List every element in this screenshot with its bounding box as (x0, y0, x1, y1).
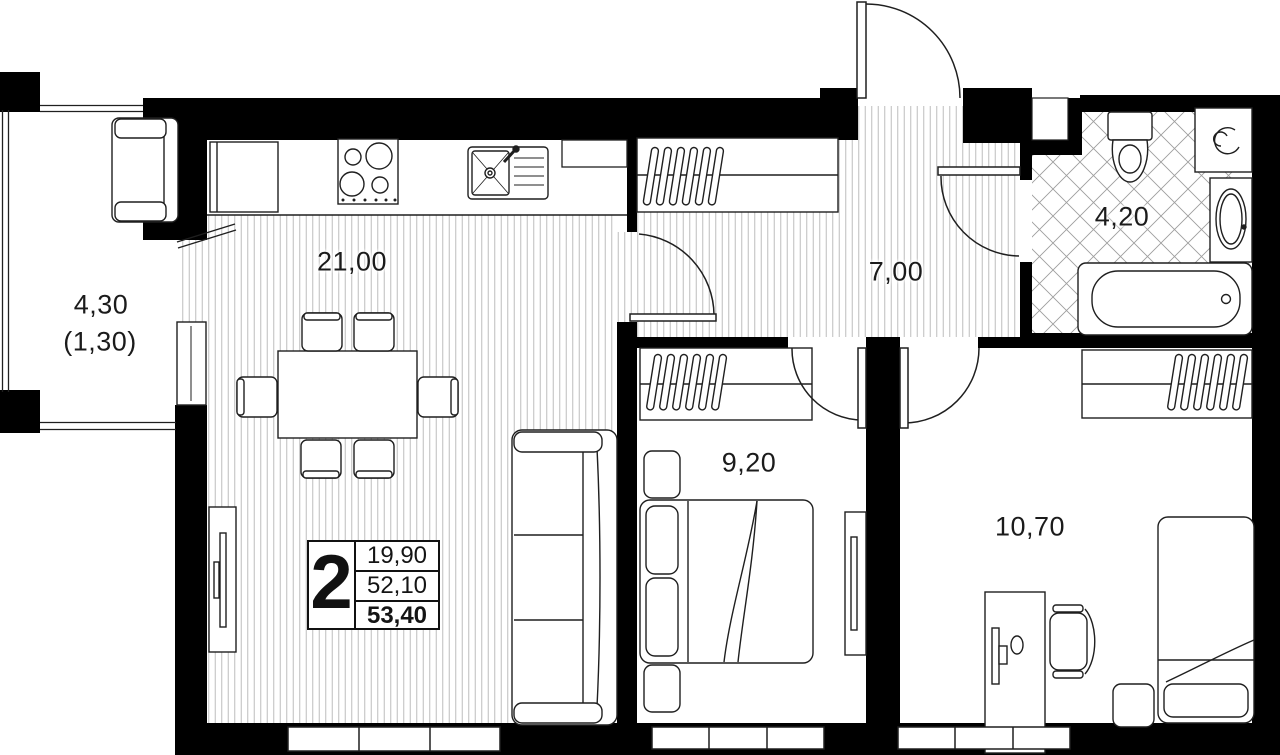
wall-top (143, 98, 858, 140)
floor-plan: 4,30 (1,30) 21,00 7,00 4,20 9,20 10,70 2… (0, 0, 1280, 755)
room-label-balcony: 4,30 (74, 290, 129, 321)
bathtub (1078, 263, 1252, 335)
vent-niche (562, 140, 627, 167)
floor-plan-drawing (0, 0, 1280, 755)
windows (288, 727, 1070, 751)
room-label-bathroom: 4,20 (1095, 202, 1150, 233)
stat-room-count: 2 (309, 542, 356, 628)
hallway-wardrobe (637, 138, 838, 212)
apartment-stats-table: 2 19,90 52,10 53,40 (307, 540, 440, 630)
floor-balcony-doorway (178, 240, 207, 322)
washing-machine (1195, 108, 1252, 172)
mouse (1011, 636, 1023, 654)
room-label-balcony-reduced: (1,30) (63, 327, 137, 358)
door-leaf (857, 2, 866, 98)
floor-entrance-threshold (858, 106, 963, 140)
bedroom2-wardrobe (1082, 350, 1252, 418)
room-label-hallway: 7,00 (869, 257, 924, 288)
bedroom1-wardrobe (640, 348, 812, 420)
tv-screen (220, 533, 226, 627)
wall-right (1252, 95, 1280, 755)
bedroom2-window (898, 727, 1070, 749)
dining-table (278, 351, 417, 438)
door-leaf (858, 348, 866, 428)
stat-apartment-area: 52,10 (356, 570, 438, 600)
single-bed (1158, 517, 1254, 723)
dining-chair (237, 377, 277, 417)
wall-left (175, 405, 207, 755)
stat-living-area: 19,90 (356, 542, 438, 570)
pillow (1164, 684, 1248, 717)
mirror (845, 512, 866, 655)
balcony-corner-block (0, 390, 40, 433)
nightstand (644, 665, 680, 712)
sofa (512, 430, 617, 725)
kitchen-sink (468, 146, 548, 199)
bedroom2-door (900, 348, 979, 428)
balcony-corner-block (0, 72, 40, 112)
door-leaf (900, 348, 908, 428)
pillow (646, 506, 678, 574)
dining-chair (354, 313, 394, 351)
wall-between-bedrooms (866, 337, 900, 755)
stat-total-area: 53,40 (356, 600, 438, 630)
door-leaf (938, 167, 1020, 175)
living-room-window (288, 727, 500, 751)
nightstand (1113, 684, 1154, 727)
room-label-bedroom1: 9,20 (722, 448, 777, 479)
tv-console (209, 507, 236, 652)
dining-chair (418, 377, 458, 417)
room-label-kitchen-living: 21,00 (317, 247, 387, 278)
desk-chair (1050, 605, 1095, 678)
dining-chair (354, 440, 394, 478)
pillow (646, 578, 678, 656)
service-shaft (1032, 98, 1068, 140)
wash-basin (1210, 178, 1252, 262)
door-leaf (630, 314, 716, 321)
dining-chair (301, 440, 341, 478)
entrance-door (857, 2, 960, 98)
monitor (992, 628, 999, 684)
stove (338, 139, 398, 204)
balcony-bench (112, 118, 178, 222)
dining-chair (302, 313, 342, 351)
door-swing-arc (904, 348, 979, 423)
double-bed (640, 500, 813, 663)
room-label-bedroom2: 10,70 (995, 512, 1065, 543)
fridge (210, 142, 278, 212)
door-swing-arc (866, 4, 960, 98)
bedroom1-window (652, 727, 824, 749)
wall-living-bedroom1 (617, 322, 637, 755)
nightstand (644, 451, 680, 498)
